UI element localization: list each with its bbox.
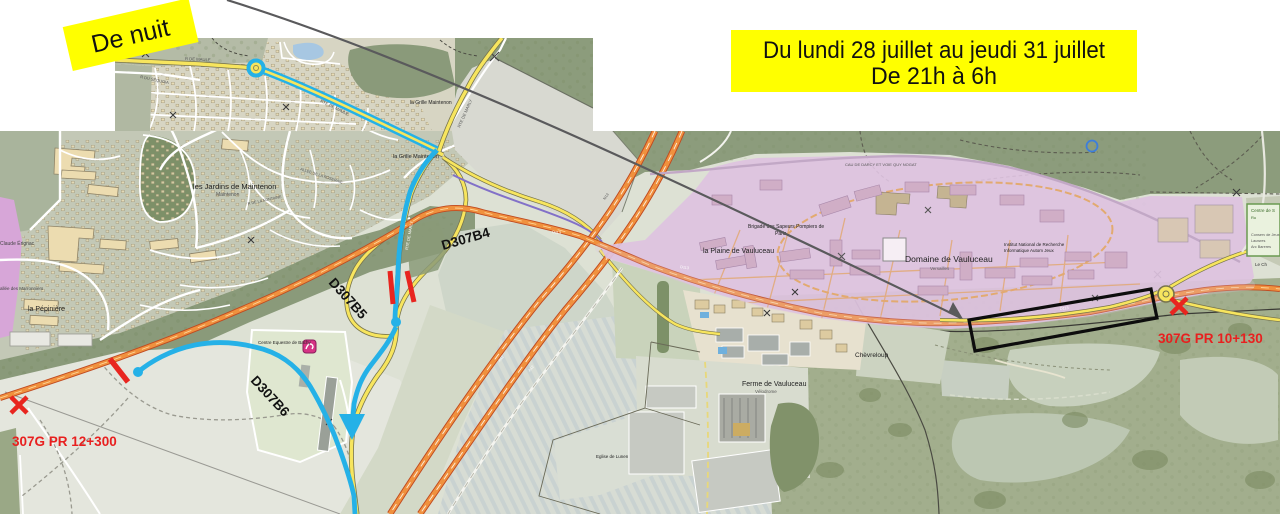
svg-text:Le Ch: Le Ch xyxy=(1255,262,1268,267)
svg-text:307G PR 10+130: 307G PR 10+130 xyxy=(1158,331,1263,346)
svg-text:Lauwres: Lauwres xyxy=(1251,239,1265,243)
svg-text:Ferme de Vauluceau: Ferme de Vauluceau xyxy=(742,381,807,388)
svg-text:Vélodrome: Vélodrome xyxy=(755,389,777,394)
svg-text:Institut National de Recherche: Institut National de Recherche xyxy=(1004,242,1065,247)
svg-text:Arc Bareres: Arc Bareres xyxy=(1251,245,1271,249)
svg-text:les Jardins de Maintenon: les Jardins de Maintenon xyxy=(193,182,276,191)
svg-text:Domaine de Vauluceau: Domaine de Vauluceau xyxy=(905,254,993,264)
svg-text:CAU DE DARCY ET VOIE QUY NOGAT: CAU DE DARCY ET VOIE QUY NOGAT xyxy=(845,162,917,167)
svg-text:Centre de S: Centre de S xyxy=(1251,208,1275,213)
svg-text:Brigade des Sapeurs Pompiers d: Brigade des Sapeurs Pompiers de xyxy=(748,224,824,230)
svg-text:Conserv de Jeux: Conserv de Jeux xyxy=(1251,233,1280,237)
svg-text:la Grille Maintenon: la Grille Maintenon xyxy=(410,100,452,106)
svg-text:Du lundi 28 juillet au jeudi 3: Du lundi 28 juillet au jeudi 31 juillet xyxy=(763,37,1105,64)
svg-text:allée des Marronniers: allée des Marronniers xyxy=(0,286,44,291)
svg-text:307G PR 12+300: 307G PR 12+300 xyxy=(12,434,117,449)
svg-text:Maintenon: Maintenon xyxy=(216,192,240,198)
svg-text:Informatique Autom Jeux: Informatique Autom Jeux xyxy=(1004,248,1055,253)
svg-text:Chèvreloup: Chèvreloup xyxy=(855,352,889,359)
svg-text:De 21h à 6h: De 21h à 6h xyxy=(871,63,997,90)
svg-text:Ru: Ru xyxy=(1251,215,1256,220)
svg-text:Eglise de Lunen: Eglise de Lunen xyxy=(596,454,629,459)
svg-text:Claude Érignac: Claude Érignac xyxy=(0,240,35,247)
svg-text:la Plaine de Vauluceau: la Plaine de Vauluceau xyxy=(703,248,774,255)
svg-text:Centre Equestre de Bachy: Centre Equestre de Bachy xyxy=(258,340,312,345)
svg-text:Versailles: Versailles xyxy=(930,266,950,271)
svg-text:la Pépinière: la Pépinière xyxy=(28,306,65,313)
